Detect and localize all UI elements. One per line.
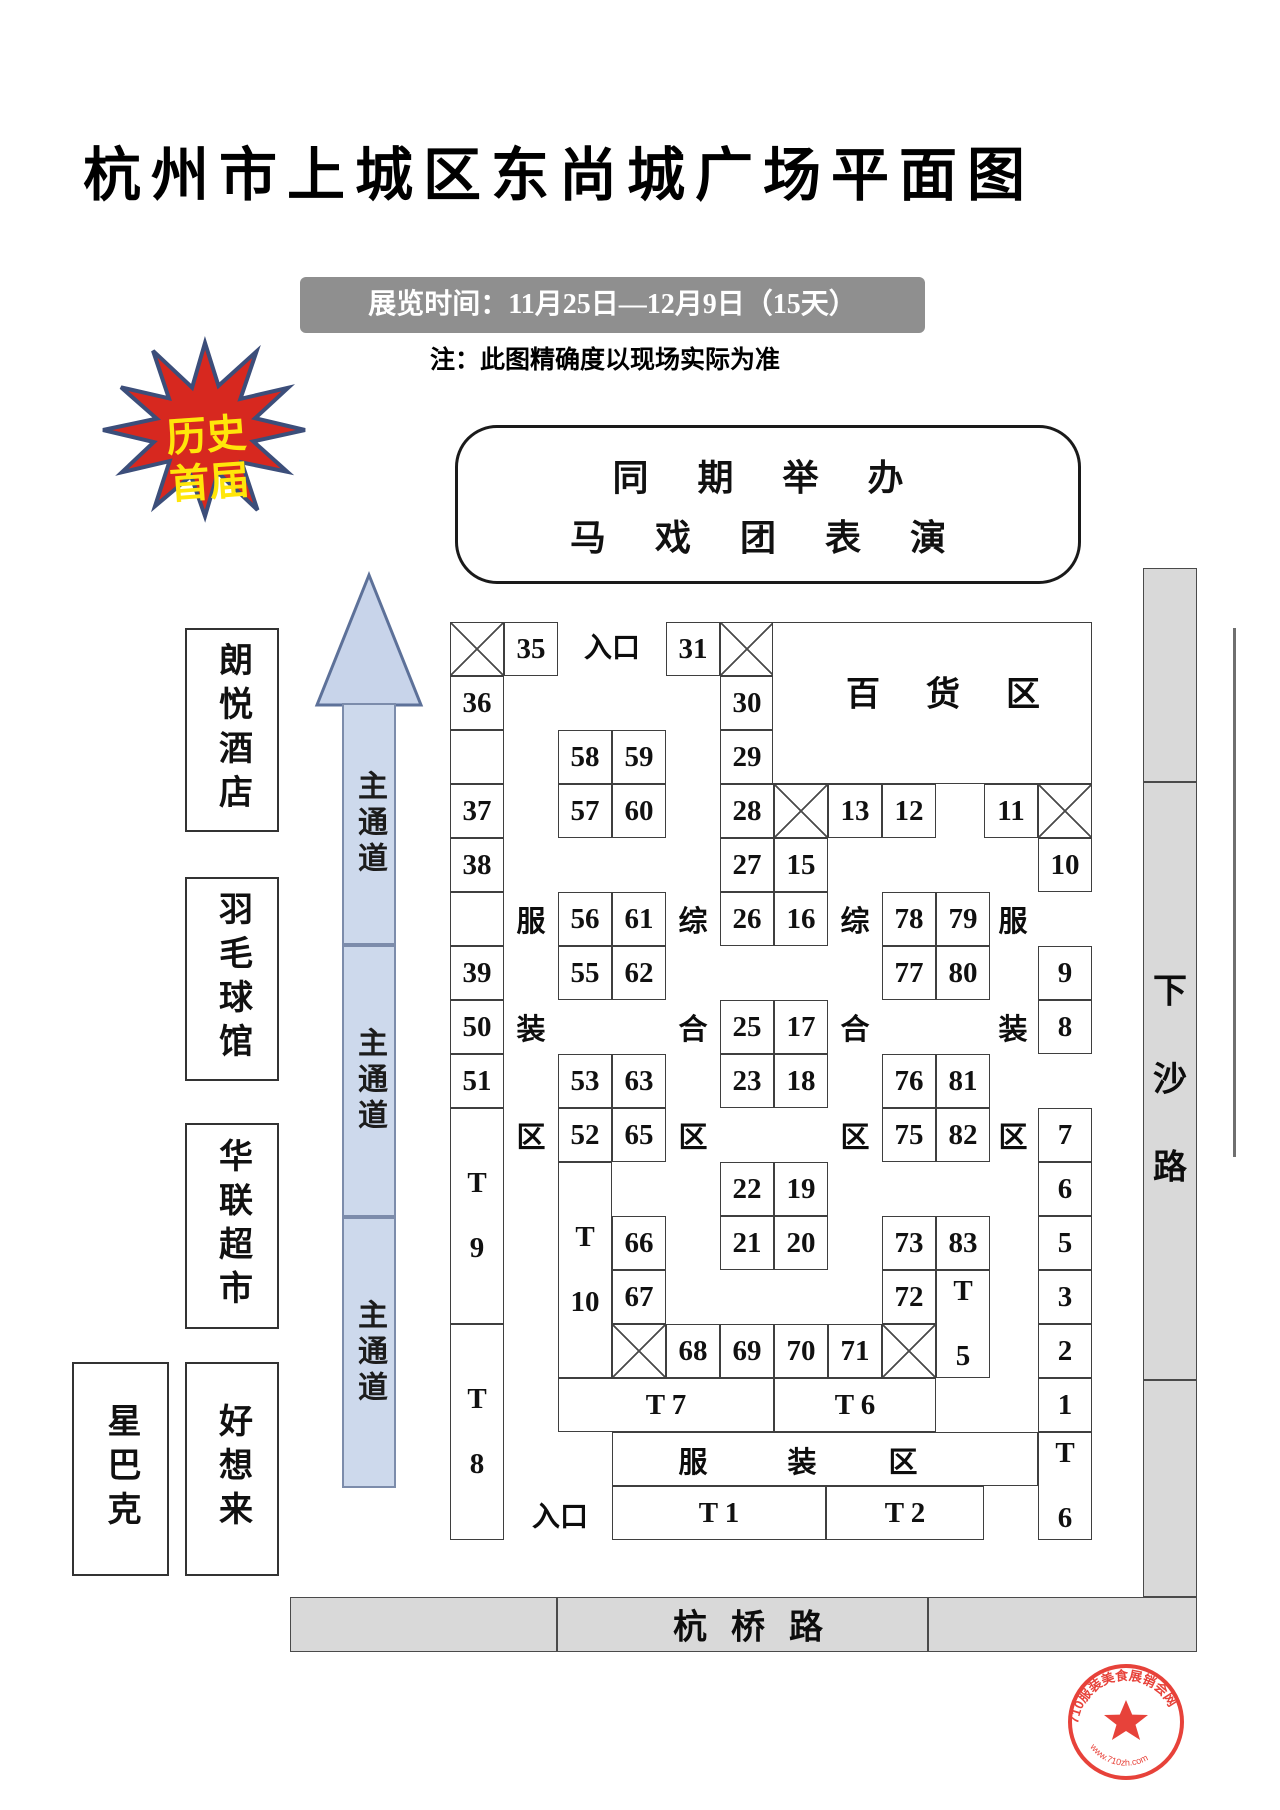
building-羽毛球馆: 羽毛球馆 (185, 877, 279, 1081)
booth-70: 70 (774, 1324, 828, 1378)
booth-58: 58 (558, 730, 612, 784)
booth-62: 62 (612, 946, 666, 1000)
booth-T6: T 6 (774, 1378, 936, 1432)
booth-78: 78 (882, 892, 936, 946)
exhibition-time-banner: 展览时间：11月25日—12月9日（15天） (300, 277, 925, 333)
map-label-装-4: 装 (516, 1006, 545, 1048)
booth-60: 60 (612, 784, 666, 838)
booth-73: 73 (882, 1216, 936, 1270)
booth-76: 76 (882, 1054, 936, 1108)
map-label-入口-18: 入口 (584, 626, 640, 666)
booth-1: 1 (1038, 1378, 1092, 1432)
booth-18: 18 (774, 1054, 828, 1108)
booth-39: 39 (450, 946, 504, 1000)
booth-closed-x (882, 1324, 936, 1378)
booth-T1: T 1 (612, 1486, 826, 1540)
booth-closed-x (1038, 784, 1092, 838)
booth-79: 79 (936, 892, 990, 946)
booth-empty (450, 730, 504, 784)
booth-19: 19 (774, 1162, 828, 1216)
road-xiasha-segment-3 (1143, 1380, 1197, 1597)
booth-55: 55 (558, 946, 612, 1000)
booth-12: 12 (882, 784, 936, 838)
booth-: T6 (1038, 1432, 1092, 1540)
booth-61: 61 (612, 892, 666, 946)
booth-35: 35 (504, 622, 558, 676)
booth-: T5 (936, 1270, 990, 1378)
road-hangqiao-segment-3 (928, 1597, 1197, 1652)
building-好想来: 好想来 (185, 1362, 279, 1576)
booth-67: 67 (612, 1270, 666, 1324)
circus-event-box: 同 期 举 办 马 戏 团 表 演 (455, 425, 1081, 584)
booth-3: 3 (1038, 1270, 1092, 1324)
map-label-区-14: 区 (998, 1114, 1027, 1156)
booth-25: 25 (720, 1000, 774, 1054)
map-label-下-23: 下 (1153, 964, 1187, 1013)
booth-closed-x (774, 784, 828, 838)
map-label-服-12: 服 (998, 898, 1027, 940)
booth-77: 77 (882, 946, 936, 1000)
booth-23: 23 (720, 1054, 774, 1108)
booth-53: 53 (558, 1054, 612, 1108)
map-label-路-25: 路 (1153, 1140, 1187, 1189)
booth-11: 11 (984, 784, 1038, 838)
booth-57: 57 (558, 784, 612, 838)
booth-68: 68 (666, 1324, 720, 1378)
booth-21: 21 (720, 1216, 774, 1270)
clothing-zone-band (612, 1432, 1038, 1486)
event-line-2: 马 戏 团 表 演 (570, 509, 966, 561)
stamp-bottom-text: www.710zh.com (1088, 1741, 1150, 1768)
map-label-桥-21: 桥 (731, 1600, 765, 1649)
map-label-服-3: 服 (516, 898, 545, 940)
booth-2: 2 (1038, 1324, 1092, 1378)
booth-9: 9 (1038, 946, 1092, 1000)
booth-22: 22 (720, 1162, 774, 1216)
main-aisle-segment-1: 主通道 (342, 703, 396, 945)
map-label-区-17: 区 (888, 1439, 917, 1481)
map-label-服-15: 服 (678, 1439, 707, 1481)
booth-52: 52 (558, 1108, 612, 1162)
booth-empty (450, 892, 504, 946)
booth-36: 36 (450, 676, 504, 730)
booth-T2: T 2 (826, 1486, 984, 1540)
map-label-入口-19: 入口 (532, 1495, 588, 1535)
booth-15: 15 (774, 838, 828, 892)
booth-: T8 (450, 1324, 504, 1540)
booth-: T10 (558, 1162, 612, 1378)
booth-69: 69 (720, 1324, 774, 1378)
map-label-百-0: 百 (846, 667, 880, 716)
booth-71: 71 (828, 1324, 882, 1378)
map-label-区-5: 区 (516, 1114, 545, 1156)
booth-38: 38 (450, 838, 504, 892)
booth-27: 27 (720, 838, 774, 892)
booth-26: 26 (720, 892, 774, 946)
booth-closed-x (720, 622, 774, 676)
booth-20: 20 (774, 1216, 828, 1270)
booth-closed-x (450, 622, 504, 676)
page-title: 杭州市上城区东尚城广场平面图 (83, 128, 1035, 212)
booth-T7: T 7 (558, 1378, 774, 1432)
map-label-合-7: 合 (678, 1006, 707, 1048)
booth-37: 37 (450, 784, 504, 838)
booth-75: 75 (882, 1108, 936, 1162)
road-xiasha-segment-1 (1143, 568, 1197, 782)
booth-56: 56 (558, 892, 612, 946)
accuracy-note: 注：此图精确度以现场实际为准 (430, 340, 780, 376)
svg-text:www.710zh.com: www.710zh.com (1088, 1741, 1150, 1768)
main-aisle-segment-3: 主通道 (342, 1217, 396, 1488)
floor-plan-page: 杭州市上城区东尚城广场平面图 展览时间：11月25日—12月9日（15天） 注：… (0, 0, 1280, 1810)
booth-13: 13 (828, 784, 882, 838)
map-label-杭-20: 杭 (673, 1600, 707, 1649)
booth-31: 31 (666, 622, 720, 676)
booth-30: 30 (720, 676, 774, 730)
starburst-label: 历史 首届 (125, 408, 291, 513)
booth-8: 8 (1038, 1000, 1092, 1054)
road-hangqiao-segment-1 (290, 1597, 557, 1652)
booth-: T9 (450, 1108, 504, 1324)
booth-82: 82 (936, 1108, 990, 1162)
booth-50: 50 (450, 1000, 504, 1054)
starburst-line-1: 历史 (165, 411, 248, 460)
booth-17: 17 (774, 1000, 828, 1054)
booth-29: 29 (720, 730, 774, 784)
map-label-路-22: 路 (789, 1600, 823, 1649)
map-label-区-2: 区 (1006, 667, 1040, 716)
booth-63: 63 (612, 1054, 666, 1108)
map-label-货-1: 货 (926, 667, 960, 716)
starburst-line-2: 首届 (168, 458, 251, 507)
map-label-区-8: 区 (678, 1114, 707, 1156)
booth-16: 16 (774, 892, 828, 946)
map-label-综-9: 综 (840, 898, 869, 940)
map-label-沙-24: 沙 (1153, 1052, 1187, 1101)
map-label-区-11: 区 (840, 1114, 869, 1156)
booth-83: 83 (936, 1216, 990, 1270)
building-华联超市: 华联超市 (185, 1123, 279, 1329)
map-edge-line (1233, 628, 1236, 1157)
building-朗悦酒店: 朗悦酒店 (185, 628, 279, 832)
map-label-合-10: 合 (840, 1006, 869, 1048)
booth-66: 66 (612, 1216, 666, 1270)
booth-80: 80 (936, 946, 990, 1000)
booth-7: 7 (1038, 1108, 1092, 1162)
booth-65: 65 (612, 1108, 666, 1162)
main-aisle-segment-2: 主通道 (342, 945, 396, 1217)
booth-72: 72 (882, 1270, 936, 1324)
main-aisle-arrow-icon (300, 560, 440, 720)
booth-6: 6 (1038, 1162, 1092, 1216)
stamp-star-icon (1104, 1700, 1148, 1740)
booth-59: 59 (612, 730, 666, 784)
map-label-装-13: 装 (998, 1006, 1027, 1048)
building-星巴克: 星巴克 (72, 1362, 169, 1576)
booth-81: 81 (936, 1054, 990, 1108)
map-label-装-16: 装 (787, 1439, 816, 1481)
event-line-1: 同 期 举 办 (612, 449, 923, 501)
map-label-综-6: 综 (678, 898, 707, 940)
booth-5: 5 (1038, 1216, 1092, 1270)
booth-51: 51 (450, 1054, 504, 1108)
booth-28: 28 (720, 784, 774, 838)
booth-10: 10 (1038, 838, 1092, 892)
red-stamp-watermark: 710服装美食展销会网 www.710zh.com (1060, 1656, 1192, 1788)
booth-closed-x (612, 1324, 666, 1378)
